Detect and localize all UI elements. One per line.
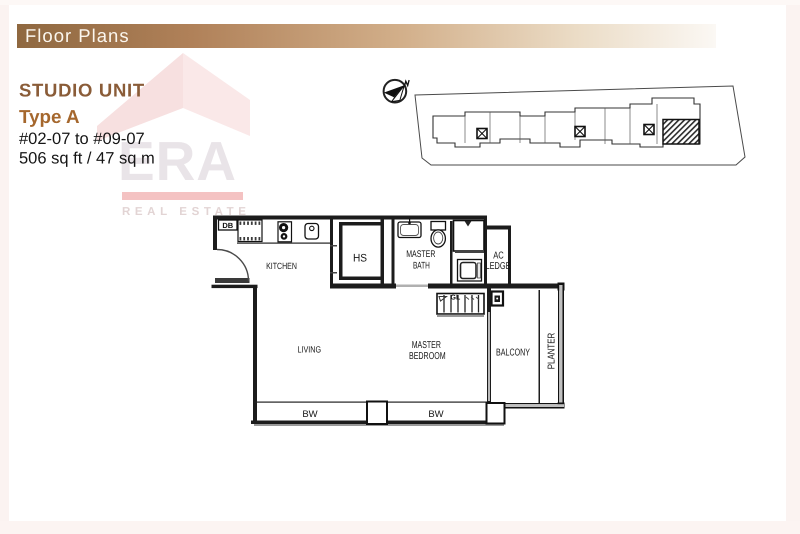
- svg-text:LEDGE: LEDGE: [485, 261, 510, 272]
- svg-text:AC: AC: [493, 251, 504, 262]
- svg-text:BALCONY: BALCONY: [496, 347, 530, 358]
- svg-text:MASTER: MASTER: [406, 249, 435, 260]
- svg-text:MASTER: MASTER: [412, 340, 441, 351]
- svg-text:KITCHEN: KITCHEN: [266, 261, 297, 271]
- svg-text:BEDROOM: BEDROOM: [409, 351, 446, 362]
- svg-text:DB: DB: [222, 221, 233, 230]
- svg-text:LIVING: LIVING: [297, 345, 321, 355]
- svg-text:BW: BW: [302, 409, 317, 420]
- svg-text:Floor Plans: Floor Plans: [25, 25, 130, 46]
- svg-text:Type A: Type A: [19, 106, 80, 127]
- svg-text:HS: HS: [353, 253, 367, 265]
- svg-text:PLANTER: PLANTER: [547, 333, 558, 369]
- svg-text:STUDIO UNIT: STUDIO UNIT: [19, 80, 145, 101]
- svg-text:BATH: BATH: [413, 260, 430, 271]
- svg-text:BW: BW: [428, 409, 443, 420]
- svg-text:#02-07 to #09-07: #02-07 to #09-07: [19, 130, 145, 148]
- svg-text:506 sq ft / 47 sq m: 506 sq ft / 47 sq m: [19, 150, 155, 168]
- svg-text:GL: GL: [451, 295, 461, 302]
